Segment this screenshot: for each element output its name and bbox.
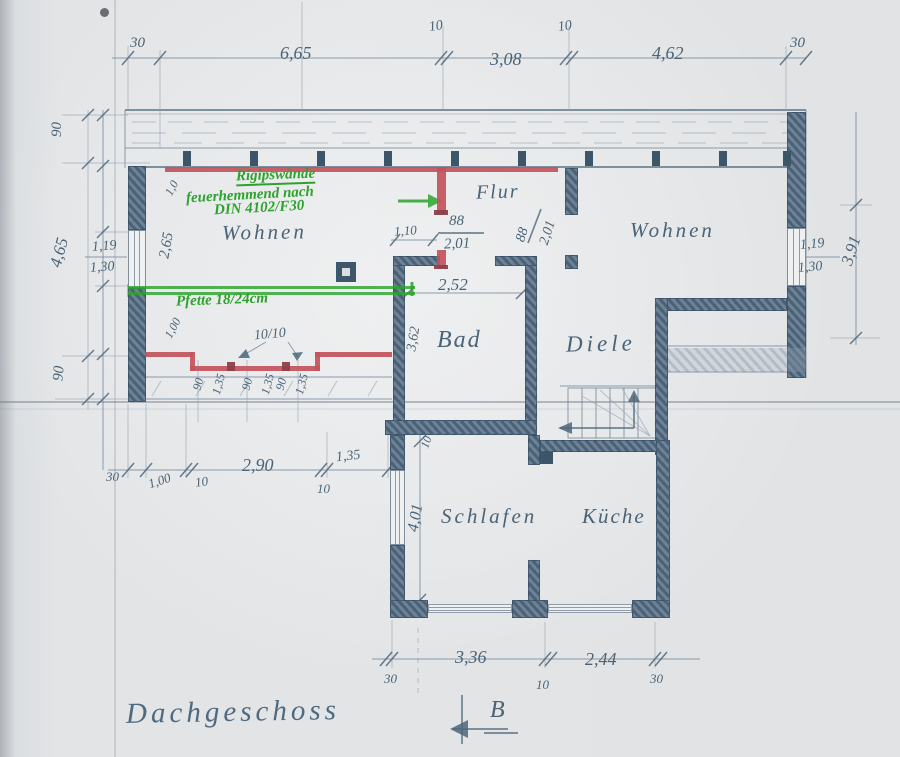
wall-south-left (390, 600, 428, 618)
dim-door1-201: 2,01 (444, 236, 471, 252)
room-label-flur: Flur (476, 181, 520, 203)
window-south-kueche (548, 604, 632, 613)
wall-right-outer-upper (787, 112, 806, 228)
room-label-wohnen-right: Wohnen (630, 220, 715, 241)
dim-right-119: 1,19 (799, 237, 825, 253)
dim-left-130: 1,30 (90, 260, 115, 276)
wall-lower-north (385, 420, 537, 435)
dim-bottom-10: 10 (536, 678, 549, 691)
room-label-schlafen: Schlafen (441, 506, 537, 527)
wall-kueche-north (540, 440, 670, 452)
scan-mark (100, 8, 109, 17)
red-post-2 (282, 362, 290, 371)
dim-top-10-a: 10 (428, 19, 444, 35)
dim-bottom-244: 2,44 (585, 650, 617, 668)
annotation-pfette: Pfette 18/24cm (176, 291, 269, 309)
dim-top-30-right: 30 (790, 36, 805, 51)
wall-lower-west-upper (390, 435, 405, 470)
knee-post (719, 151, 727, 166)
dim-row-30: 30 (106, 470, 119, 483)
dim-right-130: 1,30 (797, 260, 823, 276)
dim-door-110: 1,10 (394, 223, 418, 238)
knee-post (585, 151, 593, 166)
knee-post (652, 151, 660, 166)
floorplan-sheet: Wohnen Flur Wohnen Bad Diele Schlafen Kü… (0, 0, 900, 757)
knee-post (317, 151, 325, 166)
drawing-title: Dachgeschoss (126, 696, 340, 729)
dim-row-290: 2,90 (242, 456, 274, 474)
wall-bad-north-left (393, 256, 440, 266)
wall-bad-west (393, 256, 405, 422)
knee-post (384, 151, 392, 166)
wall-wohnenR-south (655, 298, 787, 311)
dim-bottom-336: 3,36 (455, 648, 487, 666)
dim-left-119: 1,19 (92, 239, 117, 255)
purlin-line-bottom (128, 292, 415, 295)
wall-south-right (632, 600, 670, 618)
room-label-wohnen-left: Wohnen (222, 221, 307, 243)
window-south-schlafen (428, 604, 512, 613)
stairs (558, 386, 660, 438)
sill-hatch-right (658, 348, 806, 372)
divider-door-post (540, 452, 553, 464)
chimney-flue (342, 268, 350, 276)
wall-lower-east (656, 440, 670, 618)
dim-top-10-b: 10 (557, 19, 573, 35)
wall-bad-north-right (495, 256, 537, 266)
purlin-line-top (128, 286, 415, 289)
dim-row-135: 1,35 (335, 449, 361, 465)
window-lower-west (390, 470, 405, 545)
room-label-bad: Bad (437, 328, 482, 352)
room-label-diele: Diele (566, 331, 636, 355)
room-label-kueche: Küche (582, 506, 646, 527)
red-post-1 (227, 362, 235, 371)
dim-top-30-left: 30 (130, 36, 145, 51)
wall-left-outer-lower (128, 288, 146, 402)
wall-left-outer-upper (128, 166, 146, 230)
dim-bottom-30-right: 30 (650, 672, 663, 685)
section-arrow (450, 695, 518, 744)
knee-post (451, 151, 459, 166)
dim-top-308: 3,08 (490, 50, 522, 68)
dim-door1-88: 88 (449, 214, 464, 229)
wall-south-mid (512, 600, 548, 618)
dim-row-10-a: 10 (194, 474, 209, 489)
knee-post (183, 151, 191, 166)
dim-top-665: 6,65 (280, 44, 312, 62)
red-wall-flur-west (437, 167, 446, 214)
dim-bad-252: 2,52 (438, 276, 468, 293)
knee-post (518, 151, 526, 166)
chimney (336, 262, 356, 282)
red-wall-bay-left (145, 352, 193, 357)
wall-wohnenR-west (565, 168, 578, 215)
red-wall-cap (434, 210, 448, 215)
red-wall-bay-bottom (190, 366, 320, 371)
wall-bad-east (525, 256, 537, 422)
annotation-posts-size: 10/10 (253, 327, 286, 344)
window-left (128, 230, 146, 288)
dim-left-90-top: 90 (50, 122, 65, 137)
wall-diele-east (655, 298, 668, 455)
red-wall-top (165, 167, 558, 172)
red-jamb-cap (434, 265, 448, 269)
dim-row-10-b: 10 (317, 482, 330, 495)
section-marker-label: B (490, 698, 505, 722)
dim-top-462: 4,62 (652, 44, 684, 62)
wall-wohnenR-west-jamb (565, 255, 578, 269)
wall-divider-upper (528, 435, 540, 465)
knee-post (250, 151, 258, 166)
dim-left-90-bottom: 90 (51, 365, 67, 381)
knee-post (783, 151, 791, 166)
red-wall-bay-right (315, 352, 392, 357)
post-pointer-arrows (238, 342, 303, 361)
dim-bottom-30-left: 30 (384, 672, 397, 685)
